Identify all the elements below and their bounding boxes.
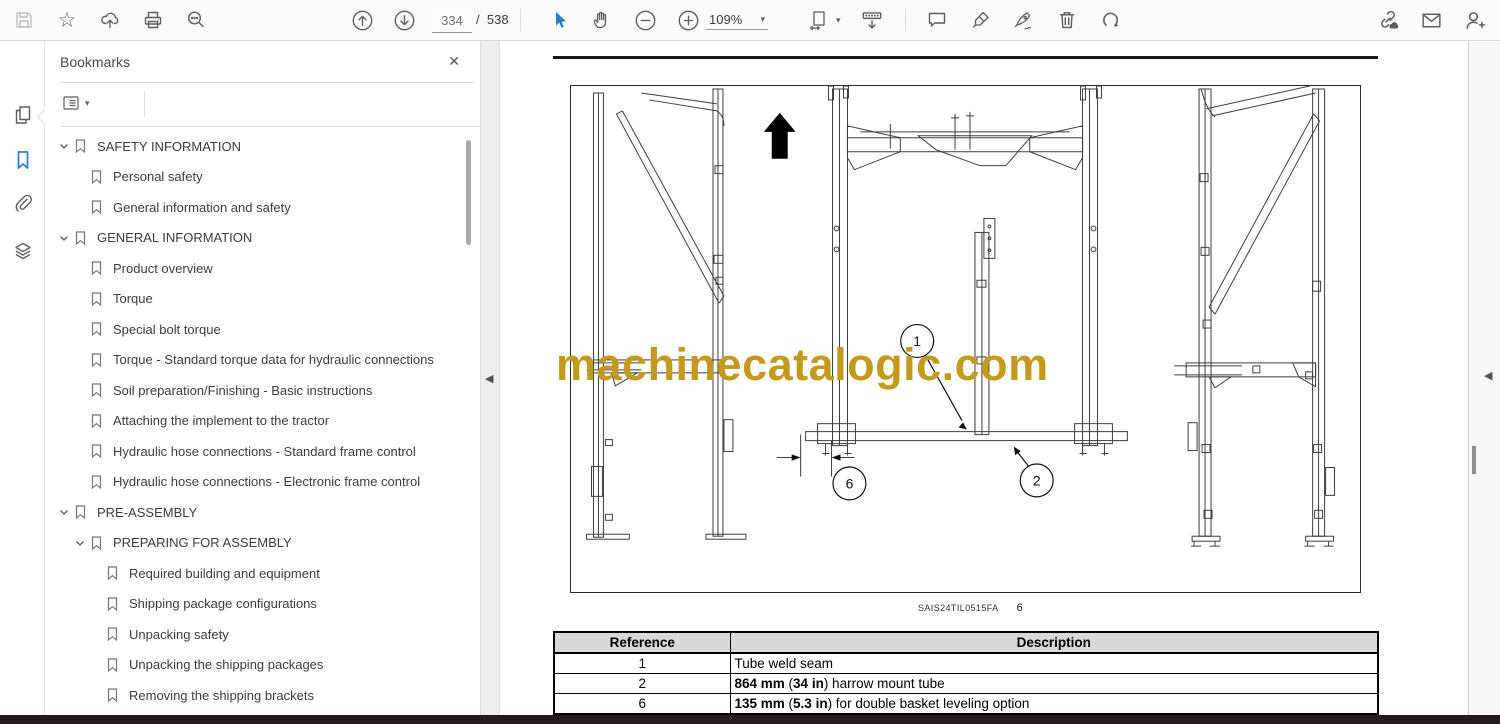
callout-1-label: 1 bbox=[913, 333, 921, 349]
bookmark-label: Shipping package configurations bbox=[129, 596, 317, 611]
up-arrow-icon bbox=[764, 113, 796, 159]
callout-1-arrowhead bbox=[959, 422, 967, 429]
document-scrollbar[interactable] bbox=[1472, 446, 1476, 474]
sign-pen-button[interactable] bbox=[1011, 8, 1035, 32]
search-tools-button[interactable] bbox=[184, 8, 208, 32]
bookmark-label: Unpacking safety bbox=[129, 627, 229, 642]
reference-table: ReferenceDescription 1Tube weld seam2864… bbox=[553, 631, 1379, 715]
bookmark-icon bbox=[106, 626, 121, 642]
previous-page-button[interactable] bbox=[350, 8, 374, 32]
callout-2-label: 2 bbox=[1033, 472, 1041, 488]
bookmark-item[interactable]: Unpacking safety bbox=[44, 619, 480, 650]
bookmark-icon bbox=[106, 596, 121, 612]
callout-2-arrowhead bbox=[1014, 447, 1021, 456]
add-user-button[interactable] bbox=[1462, 8, 1486, 32]
bookmark-icon bbox=[90, 443, 105, 459]
save-button[interactable] bbox=[12, 8, 36, 32]
fit-page-button[interactable] bbox=[806, 8, 830, 32]
attachments-icon[interactable] bbox=[11, 192, 35, 216]
bookmark-icon bbox=[90, 352, 105, 368]
chevron-down-icon: ▾ bbox=[85, 99, 90, 108]
select-tool-button[interactable] bbox=[548, 8, 572, 32]
page-count-label: / 538 bbox=[476, 12, 509, 27]
bookmark-item[interactable]: Torque bbox=[44, 284, 480, 315]
close-icon[interactable]: ✕ bbox=[448, 53, 460, 70]
panel-title: Bookmarks bbox=[60, 54, 130, 70]
description-cell: 135 mm (5.3 in) for double basket leveli… bbox=[730, 694, 1378, 715]
bookmarks-panel: Bookmarks ✕ ▾ SAFETY INFORMATIONPersonal… bbox=[44, 40, 480, 716]
callout-6-label: 6 bbox=[846, 475, 854, 491]
bookmark-label: Soil preparation/Finishing - Basic instr… bbox=[113, 383, 372, 398]
page-top-rule bbox=[553, 56, 1378, 59]
page-thumbnails-icon[interactable] bbox=[11, 103, 35, 127]
bookmark-item[interactable]: PRE-ASSEMBLY bbox=[44, 497, 480, 528]
bookmark-label: Hydraulic hose connections - Electronic … bbox=[113, 474, 420, 489]
bookmark-label: GENERAL INFORMATION bbox=[97, 230, 252, 245]
chevron-down-icon[interactable] bbox=[54, 232, 74, 244]
frame-diagram: 1 2 6 bbox=[571, 86, 1360, 592]
bookmark-item[interactable]: Removing the shipping brackets bbox=[44, 680, 480, 711]
bookmark-icon bbox=[90, 413, 105, 429]
bookmark-icon bbox=[106, 657, 121, 673]
bookmark-icon bbox=[90, 291, 105, 307]
bookmark-icon bbox=[106, 565, 121, 581]
bookmark-item[interactable]: Hydraulic hose connections - Standard fr… bbox=[44, 436, 480, 467]
description-cell: Tube weld seam bbox=[730, 653, 1378, 674]
zoom-level-select[interactable]: 109% ▾ bbox=[706, 9, 768, 30]
bookmark-icon bbox=[90, 169, 105, 185]
bookmark-item[interactable]: GENERAL INFORMATION bbox=[44, 223, 480, 254]
bookmark-icon bbox=[74, 138, 89, 154]
bookmark-label: Special bolt torque bbox=[113, 322, 221, 337]
cloud-upload-button[interactable] bbox=[98, 8, 122, 32]
next-page-button[interactable] bbox=[392, 8, 416, 32]
bookmark-label: Unpacking the shipping packages bbox=[129, 657, 323, 672]
chevron-down-icon[interactable] bbox=[54, 140, 74, 152]
panel-toolbar-divider bbox=[144, 91, 145, 117]
panel-header: Bookmarks ✕ bbox=[60, 40, 474, 83]
figure-caption: SAIS24TIL0515FA6 bbox=[918, 602, 1023, 614]
bookmark-label: Removing the shipping brackets bbox=[129, 688, 314, 703]
bookmark-item[interactable]: Unpacking the shipping packages bbox=[44, 650, 480, 681]
bookmark-label: Required building and equipment bbox=[129, 566, 320, 581]
bookmark-icon bbox=[90, 321, 105, 337]
collapse-panel-icon[interactable]: ◀ bbox=[485, 374, 493, 385]
star-button[interactable]: ☆ bbox=[55, 8, 79, 32]
bookmark-item[interactable]: Required building and equipment bbox=[44, 558, 480, 589]
table-header-cell: Reference bbox=[554, 632, 730, 653]
fit-page-chevron-icon[interactable]: ▾ bbox=[836, 16, 841, 25]
bookmark-item[interactable]: Soil preparation/Finishing - Basic instr… bbox=[44, 375, 480, 406]
layers-icon[interactable] bbox=[11, 239, 35, 263]
bookmark-item[interactable]: Special bolt torque bbox=[44, 314, 480, 345]
figure-box: 1 2 6 bbox=[570, 85, 1361, 593]
pdf-viewer-window: ☆ / 538 bbox=[0, 0, 1500, 724]
bookmark-label: Attaching the implement to the tractor bbox=[113, 413, 329, 428]
bookmark-icon bbox=[74, 230, 89, 246]
table-header-cell: Description bbox=[730, 632, 1378, 653]
bookmark-label: Product overview bbox=[113, 261, 213, 276]
toolbar-divider bbox=[905, 9, 906, 31]
bookmark-icon bbox=[90, 199, 105, 215]
reference-cell: 2 bbox=[554, 674, 730, 694]
scrolling-mode-button[interactable] bbox=[860, 8, 884, 32]
bookmark-label: Torque - Standard torque data for hydrau… bbox=[113, 352, 434, 367]
email-button[interactable] bbox=[1419, 8, 1443, 32]
chevron-down-icon[interactable] bbox=[54, 506, 74, 518]
share-link-button[interactable] bbox=[1376, 8, 1400, 32]
bookmark-item[interactable]: Product overview bbox=[44, 253, 480, 284]
bookmark-label: Torque bbox=[113, 291, 153, 306]
bookmark-item[interactable]: Personal safety bbox=[44, 162, 480, 193]
bookmark-item[interactable]: PREPARING FOR ASSEMBLY bbox=[44, 528, 480, 559]
bookmark-label: SAFETY INFORMATION bbox=[97, 139, 241, 154]
bookmark-icon bbox=[90, 382, 105, 398]
bookmark-icon bbox=[90, 474, 105, 490]
bookmark-label: General information and safety bbox=[113, 200, 291, 215]
figure-caption-number: 6 bbox=[1017, 602, 1023, 614]
bookmark-item[interactable]: General information and safety bbox=[44, 192, 480, 223]
bookmark-label: Hydraulic hose connections - Standard fr… bbox=[113, 444, 416, 459]
bookmark-item[interactable]: SAFETY INFORMATION bbox=[44, 131, 480, 162]
sidebar-rail bbox=[0, 40, 45, 716]
bookmark-item[interactable]: Attaching the implement to the tractor bbox=[44, 406, 480, 437]
bookmark-icon bbox=[74, 504, 89, 520]
panel-splitter[interactable]: ◀ bbox=[480, 40, 500, 716]
bookmark-item[interactable]: Hydraulic hose connections - Electronic … bbox=[44, 467, 480, 498]
delete-button[interactable] bbox=[1055, 8, 1079, 32]
toolbar: ☆ / 538 bbox=[0, 0, 1500, 41]
figure-caption-code: SAIS24TIL0515FA bbox=[918, 603, 999, 613]
highlight-button[interactable] bbox=[969, 8, 993, 32]
table-row: 2864 mm (34 in) harrow mount tube bbox=[554, 674, 1378, 694]
chevron-down-icon: ▾ bbox=[760, 15, 765, 24]
toolbar-divider bbox=[520, 9, 521, 31]
bookmark-icon bbox=[106, 687, 121, 703]
print-button[interactable] bbox=[141, 8, 165, 32]
expand-tools-icon[interactable]: ◀ bbox=[1484, 371, 1492, 382]
zoom-in-button[interactable] bbox=[676, 8, 700, 32]
bookmarks-panel-icon[interactable] bbox=[11, 148, 35, 172]
taskbar-edge bbox=[0, 715, 1500, 724]
bookmark-item[interactable]: Torque - Standard torque data for hydrau… bbox=[44, 345, 480, 376]
bookmark-label: PREPARING FOR ASSEMBLY bbox=[113, 535, 292, 550]
document-page[interactable]: 1 2 6 machinecatalogic.com SAIS24TIL0515… bbox=[498, 40, 1468, 716]
reference-cell: 6 bbox=[554, 694, 730, 715]
table-header-row: ReferenceDescription bbox=[554, 632, 1378, 653]
comment-button[interactable] bbox=[925, 8, 949, 32]
table-row: 6135 mm (5.3 in) for double basket level… bbox=[554, 694, 1378, 715]
bookmark-icon bbox=[90, 260, 105, 276]
bookmark-icon bbox=[90, 535, 105, 551]
table-row: 1Tube weld seam bbox=[554, 653, 1378, 674]
right-tools-strip: ◀ bbox=[1468, 40, 1500, 716]
bookmarks-scrollbar[interactable] bbox=[466, 140, 471, 245]
page-number-input[interactable] bbox=[432, 9, 472, 33]
chevron-down-icon[interactable] bbox=[70, 537, 90, 549]
bookmark-label: Personal safety bbox=[113, 169, 203, 184]
table-body: 1Tube weld seam2864 mm (34 in) harrow mo… bbox=[554, 653, 1378, 714]
bookmark-item[interactable]: Shipping package configurations bbox=[44, 589, 480, 620]
redo-button[interactable] bbox=[1098, 8, 1122, 32]
hand-tool-button[interactable] bbox=[590, 8, 614, 32]
panel-toolbar: ▾ bbox=[60, 83, 480, 127]
bookmark-label: PRE-ASSEMBLY bbox=[97, 505, 197, 520]
bookmark-options-button[interactable]: ▾ bbox=[62, 94, 90, 112]
reference-cell: 1 bbox=[554, 653, 730, 674]
zoom-out-button[interactable] bbox=[633, 8, 657, 32]
description-cell: 864 mm (34 in) harrow mount tube bbox=[730, 674, 1378, 694]
bookmarks-tree: SAFETY INFORMATIONPersonal safetyGeneral… bbox=[44, 126, 480, 716]
